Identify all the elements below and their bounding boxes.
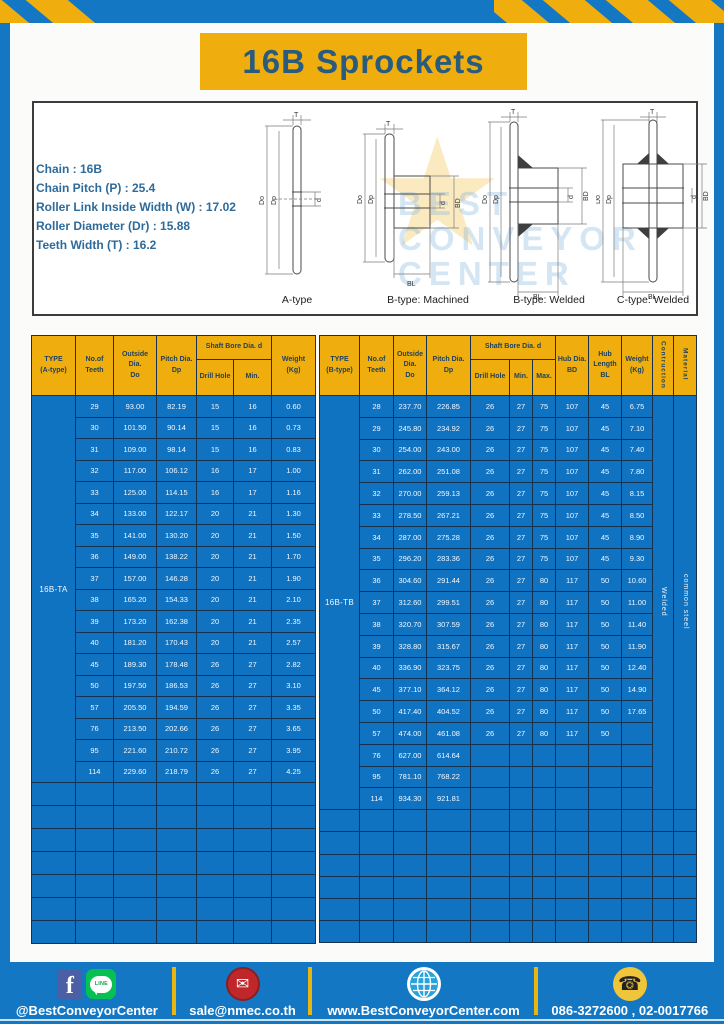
empty-cell: [589, 898, 622, 920]
data-cell: 50: [360, 701, 394, 723]
empty-cell: [272, 921, 316, 944]
data-cell: 315.67: [427, 635, 471, 657]
empty-cell: [32, 829, 76, 852]
data-cell: [589, 766, 622, 788]
empty-cell: [234, 783, 272, 806]
data-cell: 21: [234, 589, 272, 611]
spec-line: Roller Diameter (Dr) : 15.88: [36, 217, 236, 236]
dim-label-dp: Dp: [271, 196, 278, 205]
data-cell: 245.80: [394, 417, 427, 439]
spec-table-a-type: TYPE (A-type)No.of TeethOutside Dia. DoP…: [31, 335, 316, 944]
data-cell: 461.08: [427, 722, 471, 744]
data-cell: 270.00: [394, 483, 427, 505]
empty-cell: [394, 921, 427, 943]
corner-stripe: [601, 0, 681, 23]
data-cell: 75: [533, 526, 556, 548]
data-cell: 162.38: [157, 611, 197, 633]
spec-line: Chain Pitch (P) : 25.4: [36, 179, 236, 198]
data-cell: 11.90: [622, 635, 653, 657]
data-cell: 50: [589, 679, 622, 701]
empty-cell: [622, 921, 653, 943]
table-row: 31262.00251.08262775107457.80: [320, 461, 697, 483]
email-address[interactable]: sale@nmec.co.th: [189, 1003, 296, 1018]
data-cell: 141.00: [114, 525, 157, 547]
data-cell: 130.20: [157, 525, 197, 547]
data-cell: 38: [76, 589, 114, 611]
empty-cell: [471, 921, 510, 943]
empty-cell: [32, 875, 76, 898]
data-cell: 287.00: [394, 526, 427, 548]
empty-cell: [320, 832, 360, 854]
data-cell: 210.72: [157, 740, 197, 762]
empty-cell: [556, 876, 589, 898]
data-cell: 10.60: [622, 570, 653, 592]
spec-line: Teeth Width (T) : 16.2: [36, 236, 236, 255]
empty-cell: [114, 875, 157, 898]
header-weight: Weight (Kg): [272, 336, 316, 396]
empty-cell: [674, 854, 697, 876]
empty-cell: [157, 875, 197, 898]
data-cell: 37: [76, 568, 114, 590]
data-cell: 3.35: [272, 697, 316, 719]
data-cell: 7.40: [622, 439, 653, 461]
data-cell: 50: [589, 722, 622, 744]
data-cell: 20: [197, 525, 234, 547]
data-cell: 45: [76, 654, 114, 676]
data-cell: 117: [556, 722, 589, 744]
header-hub-length: Hub Length BL: [589, 336, 622, 396]
empty-cell: [589, 921, 622, 943]
header-type: TYPE (A-type): [32, 336, 76, 396]
empty-cell: [114, 898, 157, 921]
email-icon[interactable]: ✉: [226, 967, 260, 1001]
empty-cell: [510, 810, 533, 832]
data-cell: 39: [76, 611, 114, 633]
data-cell: 296.20: [394, 548, 427, 570]
empty-cell: [114, 806, 157, 829]
empty-cell: [622, 832, 653, 854]
dim-label-bd: BD: [703, 191, 710, 201]
empty-cell: [76, 852, 114, 875]
data-cell: 1.00: [272, 460, 316, 482]
data-cell: 80: [533, 679, 556, 701]
empty-row: [320, 921, 697, 943]
empty-cell: [622, 810, 653, 832]
empty-cell: [674, 876, 697, 898]
empty-cell: [157, 852, 197, 875]
data-cell: [471, 744, 510, 766]
empty-cell: [157, 829, 197, 852]
chain-specs: Chain : 16B Chain Pitch (P) : 25.4 Rolle…: [36, 160, 236, 255]
data-cell: 213.50: [114, 718, 157, 740]
empty-cell: [320, 898, 360, 920]
data-cell: 27: [510, 417, 533, 439]
corner-stripe: [664, 0, 724, 23]
data-cell: [510, 788, 533, 810]
empty-cell: [589, 876, 622, 898]
data-cell: 34: [360, 526, 394, 548]
empty-cell: [471, 876, 510, 898]
data-cell: 1.70: [272, 546, 316, 568]
empty-cell: [320, 921, 360, 943]
data-cell: 114.15: [157, 482, 197, 504]
data-cell: 27: [510, 701, 533, 723]
data-cell: 27: [510, 679, 533, 701]
data-cell: 323.75: [427, 657, 471, 679]
data-cell: [622, 766, 653, 788]
footer-email-section[interactable]: ✉ sale@nmec.co.th: [174, 962, 312, 1024]
table-row: 16B-TB28237.70226.85262775107456.75Welde…: [320, 396, 697, 418]
dim-label-t: T: [650, 109, 655, 116]
data-cell: 26: [471, 504, 510, 526]
header-min: Min.: [234, 360, 272, 396]
footer-phone-section[interactable]: ☎ 086-3272600 , 02-0017766: [536, 962, 724, 1024]
data-cell: 29: [76, 396, 114, 418]
data-cell: 45: [360, 679, 394, 701]
data-cell: 2.35: [272, 611, 316, 633]
empty-cell: [471, 810, 510, 832]
top-left-stripes: [0, 0, 260, 23]
table-row: 34287.00275.28262775107458.90: [320, 526, 697, 548]
data-cell: 1.50: [272, 525, 316, 547]
data-cell: 178.48: [157, 654, 197, 676]
empty-cell: [533, 898, 556, 920]
data-cell: 157.00: [114, 568, 157, 590]
data-cell: 26: [471, 722, 510, 744]
data-cell: 186.53: [157, 675, 197, 697]
data-cell: 6.75: [622, 396, 653, 418]
empty-cell: [272, 875, 316, 898]
data-cell: [533, 744, 556, 766]
header-shaft-bore-group: Shaft Bore Dia. d: [197, 336, 272, 360]
data-cell: 3.65: [272, 718, 316, 740]
data-cell: 80: [533, 570, 556, 592]
empty-cell: [427, 876, 471, 898]
empty-cell: [197, 875, 234, 898]
empty-cell: [622, 854, 653, 876]
empty-cell: [272, 829, 316, 852]
header-teeth: No.of Teeth: [76, 336, 114, 396]
footer-divider: [308, 967, 312, 1015]
data-cell: 80: [533, 722, 556, 744]
data-cell: 197.50: [114, 675, 157, 697]
data-cell: 328.80: [394, 635, 427, 657]
data-cell: 26: [197, 697, 234, 719]
footer-divider: [172, 967, 176, 1015]
table-row: 37312.60299.512627801175011.00: [320, 592, 697, 614]
bottom-accent-line: [0, 1019, 724, 1021]
dim-label-bd: BD: [455, 198, 462, 208]
data-cell: 234.92: [427, 417, 471, 439]
data-cell: 921.81: [427, 788, 471, 810]
empty-cell: [234, 852, 272, 875]
data-cell: 12.40: [622, 657, 653, 679]
data-cell: 27: [510, 657, 533, 679]
empty-cell: [653, 876, 674, 898]
data-cell: 15: [197, 439, 234, 461]
data-cell: 8.90: [622, 526, 653, 548]
empty-row: [320, 854, 697, 876]
data-cell: 80: [533, 613, 556, 635]
data-cell: 377.10: [394, 679, 427, 701]
data-cell: [589, 744, 622, 766]
empty-cell: [589, 832, 622, 854]
empty-cell: [360, 810, 394, 832]
data-cell: 45: [589, 439, 622, 461]
data-cell: 226.85: [427, 396, 471, 418]
data-cell: 149.00: [114, 546, 157, 568]
table-row: 39328.80315.672627801175011.90: [320, 635, 697, 657]
empty-cell: [471, 854, 510, 876]
data-cell: 20: [197, 589, 234, 611]
empty-cell: [533, 876, 556, 898]
data-cell: 3.10: [272, 675, 316, 697]
data-cell: 21: [234, 503, 272, 525]
data-cell: 7.80: [622, 461, 653, 483]
caption-c-type-welded: C-type: Welded: [588, 294, 718, 306]
empty-row: [320, 810, 697, 832]
empty-cell: [556, 854, 589, 876]
header-material: Material: [674, 336, 697, 396]
data-cell: 1.16: [272, 482, 316, 504]
data-cell: 125.00: [114, 482, 157, 504]
data-cell: 31: [360, 461, 394, 483]
data-cell: 117: [556, 592, 589, 614]
data-cell: 35: [76, 525, 114, 547]
empty-cell: [32, 898, 76, 921]
data-cell: 299.51: [427, 592, 471, 614]
data-cell: 267.21: [427, 504, 471, 526]
phone-icon[interactable]: ☎: [613, 967, 647, 1001]
data-cell: 107: [556, 526, 589, 548]
data-cell: 76: [360, 744, 394, 766]
empty-cell: [589, 810, 622, 832]
empty-row: [32, 783, 316, 806]
empty-cell: [197, 921, 234, 944]
dim-label-dp: Dp: [368, 195, 375, 204]
data-cell: 474.00: [394, 722, 427, 744]
data-cell: 27: [510, 635, 533, 657]
data-cell: 106.12: [157, 460, 197, 482]
spec-table-b-type: TYPE (B-type)No.of TeethOutside Dia. DoP…: [319, 335, 697, 943]
data-cell: 45: [589, 396, 622, 418]
data-cell: 26: [471, 483, 510, 505]
empty-cell: [533, 921, 556, 943]
data-cell: 27: [234, 740, 272, 762]
empty-cell: [76, 783, 114, 806]
table-row: 33278.50267.21262775107458.50: [320, 504, 697, 526]
data-cell: 117: [556, 657, 589, 679]
line-icon[interactable]: LINE: [86, 969, 116, 999]
data-cell: 291.44: [427, 570, 471, 592]
data-cell: 237.70: [394, 396, 427, 418]
empty-cell: [32, 783, 76, 806]
data-cell: 31: [76, 439, 114, 461]
empty-cell: [32, 806, 76, 829]
data-cell: 26: [197, 718, 234, 740]
data-cell: 117.00: [114, 460, 157, 482]
data-cell: 27: [510, 504, 533, 526]
footer-contact-bar: f LINE @BestConveyorCenter ✉ sale@nmec.c…: [0, 962, 724, 1024]
data-cell: 80: [533, 592, 556, 614]
empty-cell: [622, 898, 653, 920]
empty-cell: [360, 898, 394, 920]
empty-cell: [157, 921, 197, 944]
dim-label-bl: BL: [407, 281, 416, 288]
data-cell: 33: [360, 504, 394, 526]
data-cell: 27: [510, 396, 533, 418]
header-outside-dia: Outside Dia. Do: [394, 336, 427, 396]
header-min: Min.: [510, 360, 533, 396]
footer-website-section[interactable]: www.BestConveyorCenter.com: [311, 962, 535, 1024]
data-cell: 312.60: [394, 592, 427, 614]
data-cell: 26: [471, 570, 510, 592]
globe-icon[interactable]: [407, 967, 441, 1001]
construction-merged-cell: Welded: [653, 396, 674, 810]
data-cell: [622, 788, 653, 810]
data-cell: 39: [360, 635, 394, 657]
data-cell: 304.60: [394, 570, 427, 592]
empty-row: [32, 852, 316, 875]
empty-cell: [653, 921, 674, 943]
data-cell: 768.22: [427, 766, 471, 788]
data-cell: [533, 788, 556, 810]
header-drill-hole: Drill Hole: [197, 360, 234, 396]
data-cell: 262.00: [394, 461, 427, 483]
data-cell: 27: [510, 548, 533, 570]
data-cell: 20: [197, 546, 234, 568]
data-cell: 27: [510, 592, 533, 614]
footer-divider: [534, 967, 538, 1015]
data-cell: 36: [76, 546, 114, 568]
dim-label-d: d: [440, 201, 447, 205]
data-cell: 26: [471, 439, 510, 461]
data-cell: 107: [556, 461, 589, 483]
header-pitch-dia: Pitch Dia. Dp: [157, 336, 197, 396]
empty-cell: [114, 921, 157, 944]
empty-cell: [32, 921, 76, 944]
data-cell: 37: [360, 592, 394, 614]
table-row: 29245.80234.92262775107457.10: [320, 417, 697, 439]
table-row: 57474.00461.0826278011750: [320, 722, 697, 744]
phone-numbers[interactable]: 086-3272600 , 02-0017766: [551, 1003, 708, 1018]
data-cell: 26: [471, 701, 510, 723]
data-cell: 16: [197, 460, 234, 482]
data-cell: 173.20: [114, 611, 157, 633]
data-cell: 50: [589, 635, 622, 657]
header-max: Max.: [533, 360, 556, 396]
data-cell: 1.30: [272, 503, 316, 525]
dim-label-d: d: [316, 198, 323, 202]
data-cell: 45: [589, 526, 622, 548]
data-cell: 11.40: [622, 613, 653, 635]
empty-cell: [674, 810, 697, 832]
empty-row: [320, 832, 697, 854]
empty-cell: [197, 806, 234, 829]
empty-cell: [76, 921, 114, 944]
data-cell: 75: [533, 417, 556, 439]
dim-label-d: d: [691, 195, 698, 199]
data-cell: 9.30: [622, 548, 653, 570]
header-hub-dia: Hub Dia. BD: [556, 336, 589, 396]
data-cell: 0.73: [272, 417, 316, 439]
empty-cell: [234, 829, 272, 852]
empty-cell: [197, 898, 234, 921]
empty-cell: [533, 854, 556, 876]
empty-cell: [556, 921, 589, 943]
empty-cell: [394, 832, 427, 854]
data-cell: 0.83: [272, 439, 316, 461]
data-cell: 117: [556, 570, 589, 592]
header-drill-hole: Drill Hole: [471, 360, 510, 396]
data-cell: 1.90: [272, 568, 316, 590]
data-cell: 614.64: [427, 744, 471, 766]
data-cell: 50: [589, 592, 622, 614]
data-cell: 75: [533, 396, 556, 418]
empty-cell: [360, 854, 394, 876]
social-handle[interactable]: @BestConveyorCenter: [16, 1003, 158, 1018]
table-row: 95781.10768.22: [320, 766, 697, 788]
data-cell: 189.30: [114, 654, 157, 676]
data-cell: 26: [471, 592, 510, 614]
data-cell: 32: [360, 483, 394, 505]
data-cell: 27: [234, 697, 272, 719]
header-construction: Contruction: [653, 336, 674, 396]
empty-cell: [272, 852, 316, 875]
empty-cell: [556, 810, 589, 832]
website-url[interactable]: www.BestConveyorCenter.com: [327, 1003, 519, 1018]
data-cell: 107: [556, 548, 589, 570]
empty-cell: [76, 829, 114, 852]
data-cell: 278.50: [394, 504, 427, 526]
header-shaft-bore-group: Shaft Bore Dia. d: [471, 336, 556, 360]
empty-row: [32, 875, 316, 898]
data-cell: 117: [556, 635, 589, 657]
data-cell: 404.52: [427, 701, 471, 723]
corner-stripe: [21, 0, 101, 23]
data-cell: 26: [471, 613, 510, 635]
data-cell: 133.00: [114, 503, 157, 525]
empty-cell: [674, 832, 697, 854]
empty-cell: [320, 854, 360, 876]
dim-label-do: Do: [259, 196, 266, 205]
data-cell: 27: [510, 613, 533, 635]
data-cell: 27: [510, 526, 533, 548]
data-cell: 30: [360, 439, 394, 461]
data-cell: 40: [360, 657, 394, 679]
table-row: 76627.00614.64: [320, 744, 697, 766]
data-cell: 21: [234, 568, 272, 590]
data-cell: 11.00: [622, 592, 653, 614]
data-cell: 50: [589, 657, 622, 679]
empty-cell: [510, 876, 533, 898]
empty-cell: [510, 898, 533, 920]
diagram-c-type-welded: T Do Dp d BD BL: [596, 106, 712, 300]
data-cell: 90.14: [157, 417, 197, 439]
empty-cell: [471, 832, 510, 854]
facebook-icon[interactable]: f: [57, 970, 82, 999]
empty-cell: [674, 898, 697, 920]
data-cell: 934.30: [394, 788, 427, 810]
data-cell: 275.28: [427, 526, 471, 548]
data-cell: [622, 744, 653, 766]
data-cell: 80: [533, 657, 556, 679]
empty-cell: [76, 875, 114, 898]
data-cell: 254.00: [394, 439, 427, 461]
footer-social-section[interactable]: f LINE @BestConveyorCenter: [0, 962, 174, 1024]
empty-cell: [556, 898, 589, 920]
data-cell: 107: [556, 483, 589, 505]
